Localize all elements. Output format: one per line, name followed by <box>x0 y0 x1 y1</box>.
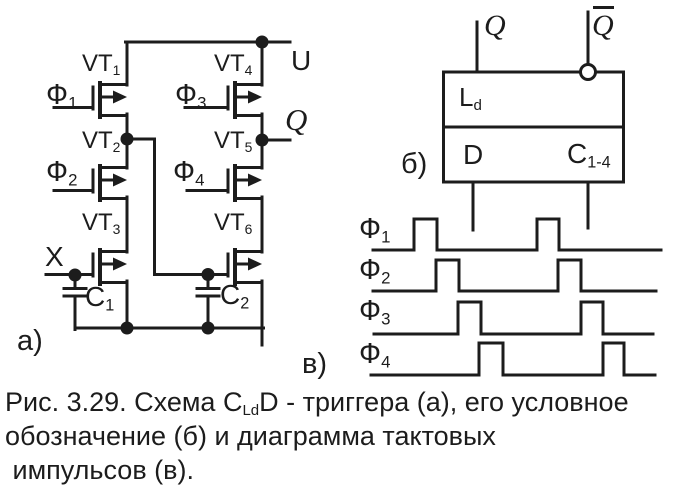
capacitor-label-c1: C1 <box>85 283 114 311</box>
vt4-sub: 4 <box>245 62 253 78</box>
c2-base: C <box>220 279 240 310</box>
transistor-label-vt4: VT4 <box>214 52 252 76</box>
waveform-f4 <box>371 343 655 375</box>
caption-line-2: обозначение (б) и диаграмма тактовых <box>5 419 685 453</box>
vt5-arrow-icon <box>248 174 262 187</box>
clock-label-f2: Ф2 <box>46 158 77 187</box>
panel-label-v: в) <box>302 350 327 379</box>
tf2-sub: 2 <box>381 269 390 288</box>
clock-label-f4: Ф4 <box>173 158 204 187</box>
transistor-label-vt3: VT3 <box>82 211 120 235</box>
tf1-sub: 1 <box>381 228 390 247</box>
caption-1-pre: Рис. 3.29. Схема С <box>5 387 242 417</box>
supply-label-u: U <box>291 47 311 75</box>
clock-label-f1: Ф1 <box>46 81 77 110</box>
transistor-label-vt1: VT1 <box>82 52 120 76</box>
vt1-base: VT <box>82 50 113 77</box>
vt4-base: VT <box>214 50 245 77</box>
waveform-f1 <box>373 219 661 250</box>
vt5-sub: 5 <box>245 139 253 155</box>
f3-base: Ф <box>175 79 197 111</box>
symbol-qinv-label: Q <box>592 11 614 41</box>
waveform-f3 <box>374 302 653 334</box>
tf3-base: Ф <box>359 295 381 327</box>
c14-base: C <box>567 138 587 169</box>
f2-sub: 2 <box>68 171 77 190</box>
junction-dot-rail-left <box>121 322 134 335</box>
q-inverted-overbar <box>593 6 614 9</box>
panel-label-b: б) <box>401 150 427 179</box>
junction-dot-u <box>256 36 269 49</box>
capacitor-label-c2: C2 <box>220 281 249 309</box>
vt3-base: VT <box>82 209 113 236</box>
capacitor-c2-symbol <box>197 275 219 330</box>
panel-label-a: а) <box>17 327 43 356</box>
transistor-label-vt5: VT5 <box>214 129 252 153</box>
clock-input-label-c14: C1-4 <box>567 140 611 168</box>
timing-label-f4: Ф4 <box>359 340 390 369</box>
wire-cross-coupling <box>127 139 155 275</box>
f4-sub: 4 <box>195 171 204 190</box>
symbol-block <box>444 12 624 230</box>
vt6-sub: 6 <box>245 221 253 237</box>
vt6-base: VT <box>214 209 245 236</box>
vt1-sub: 1 <box>113 62 121 78</box>
vt6-arrow-icon <box>248 258 262 271</box>
c1-sub: 1 <box>105 297 114 315</box>
timing-label-f1: Ф1 <box>359 215 390 244</box>
tf4-base: Ф <box>359 338 381 370</box>
vt2-base: VT <box>82 127 113 154</box>
output-label-q: Q <box>285 104 307 135</box>
f3-sub: 3 <box>197 94 206 113</box>
junction-dot-rail-right <box>202 322 215 335</box>
timing-label-f3: Ф3 <box>359 297 390 326</box>
vt1-arrow-icon <box>113 91 127 104</box>
junction-dot-q <box>256 134 269 147</box>
f1-base: Ф <box>46 79 68 111</box>
vt2-arrow-icon <box>113 174 127 187</box>
waveform-f2 <box>373 260 656 291</box>
caption-line-1: Рис. 3.29. Схема СLdD - триггера (а), ег… <box>5 385 685 419</box>
c14-sub: 1-4 <box>587 154 610 172</box>
c2-sub: 2 <box>240 295 249 313</box>
inversion-bubble <box>581 65 596 80</box>
vt3-arrow-icon <box>113 258 127 271</box>
symbol-q-label: Q <box>484 11 506 41</box>
vt3-sub: 3 <box>113 221 121 237</box>
f2-base: Ф <box>46 156 68 188</box>
tf3-sub: 3 <box>381 310 390 329</box>
f4-base: Ф <box>173 156 195 188</box>
figure-caption: Рис. 3.29. Схема СLdD - триггера (а), ег… <box>5 385 685 487</box>
tf1-base: Ф <box>359 213 381 245</box>
tf2-base: Ф <box>359 254 381 286</box>
transistor-label-vt6: VT6 <box>214 211 252 235</box>
vt4-arrow-icon <box>248 91 262 104</box>
c1-base: C <box>85 281 105 312</box>
d-input-label: D <box>463 141 483 169</box>
caption-line-3: импульсов (в). <box>5 453 685 487</box>
f1-sub: 1 <box>68 94 77 113</box>
ld-sub: d <box>473 97 481 114</box>
junction-dot-vt1-vt2 <box>121 133 134 146</box>
vt5-base: VT <box>214 127 245 154</box>
latch-label-ld: Ld <box>459 84 482 110</box>
caption-1-sub: Ld <box>242 402 259 419</box>
input-label-x: X <box>45 243 64 271</box>
tf4-sub: 4 <box>381 353 390 372</box>
capacitor-c1-symbol <box>64 275 86 330</box>
clock-label-f3: Ф3 <box>175 81 206 110</box>
timing-label-f2: Ф2 <box>359 256 390 285</box>
vt2-sub: 2 <box>113 139 121 155</box>
transistor-label-vt2: VT2 <box>82 129 120 153</box>
figure-3-29: VT1 VT2 VT3 VT4 VT5 VT6 Ф1 Ф2 Ф3 Ф4 X C1… <box>0 0 689 493</box>
caption-1-post: D - триггера (а), его условное <box>259 387 628 417</box>
ld-base: L <box>459 82 473 112</box>
